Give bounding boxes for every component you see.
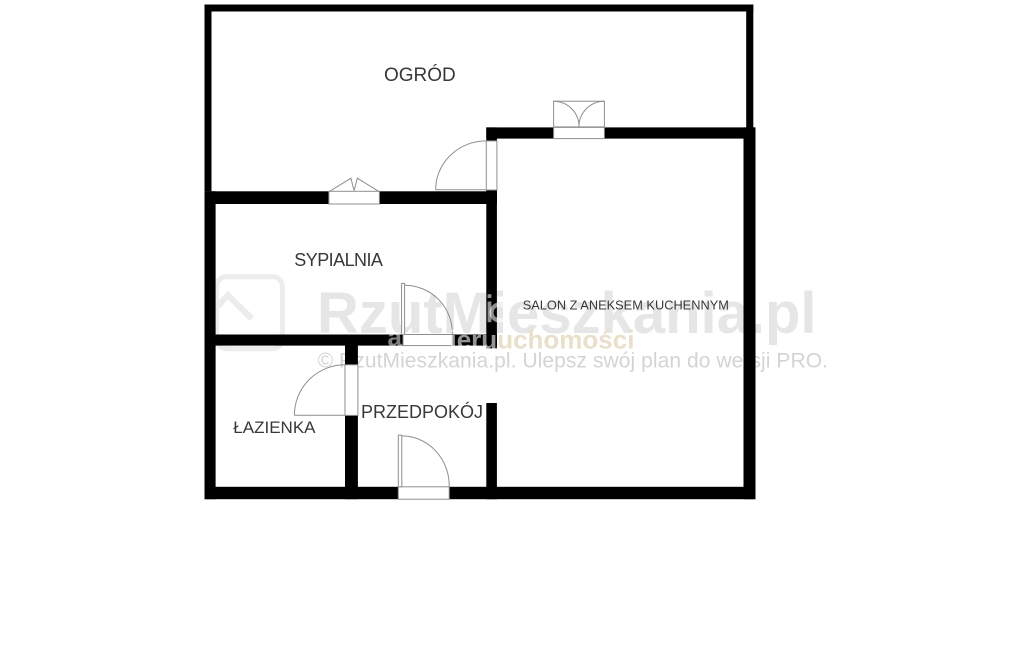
- svg-text:ieru: ieru: [450, 325, 498, 355]
- svg-text:SYPIALNIA: SYPIALNIA: [294, 250, 383, 270]
- svg-text:a: a: [388, 322, 403, 352]
- svg-text:OGRÓD: OGRÓD: [384, 64, 456, 86]
- svg-text:uchomości: uchomości: [497, 325, 634, 355]
- svg-text:PRZEDPOKÓJ: PRZEDPOKÓJ: [361, 401, 483, 422]
- svg-text:SALON Z ANEKSEM KUCHENNYM: SALON Z ANEKSEM KUCHENNYM: [523, 297, 729, 312]
- svg-text:ŁAZIENKA: ŁAZIENKA: [233, 418, 316, 437]
